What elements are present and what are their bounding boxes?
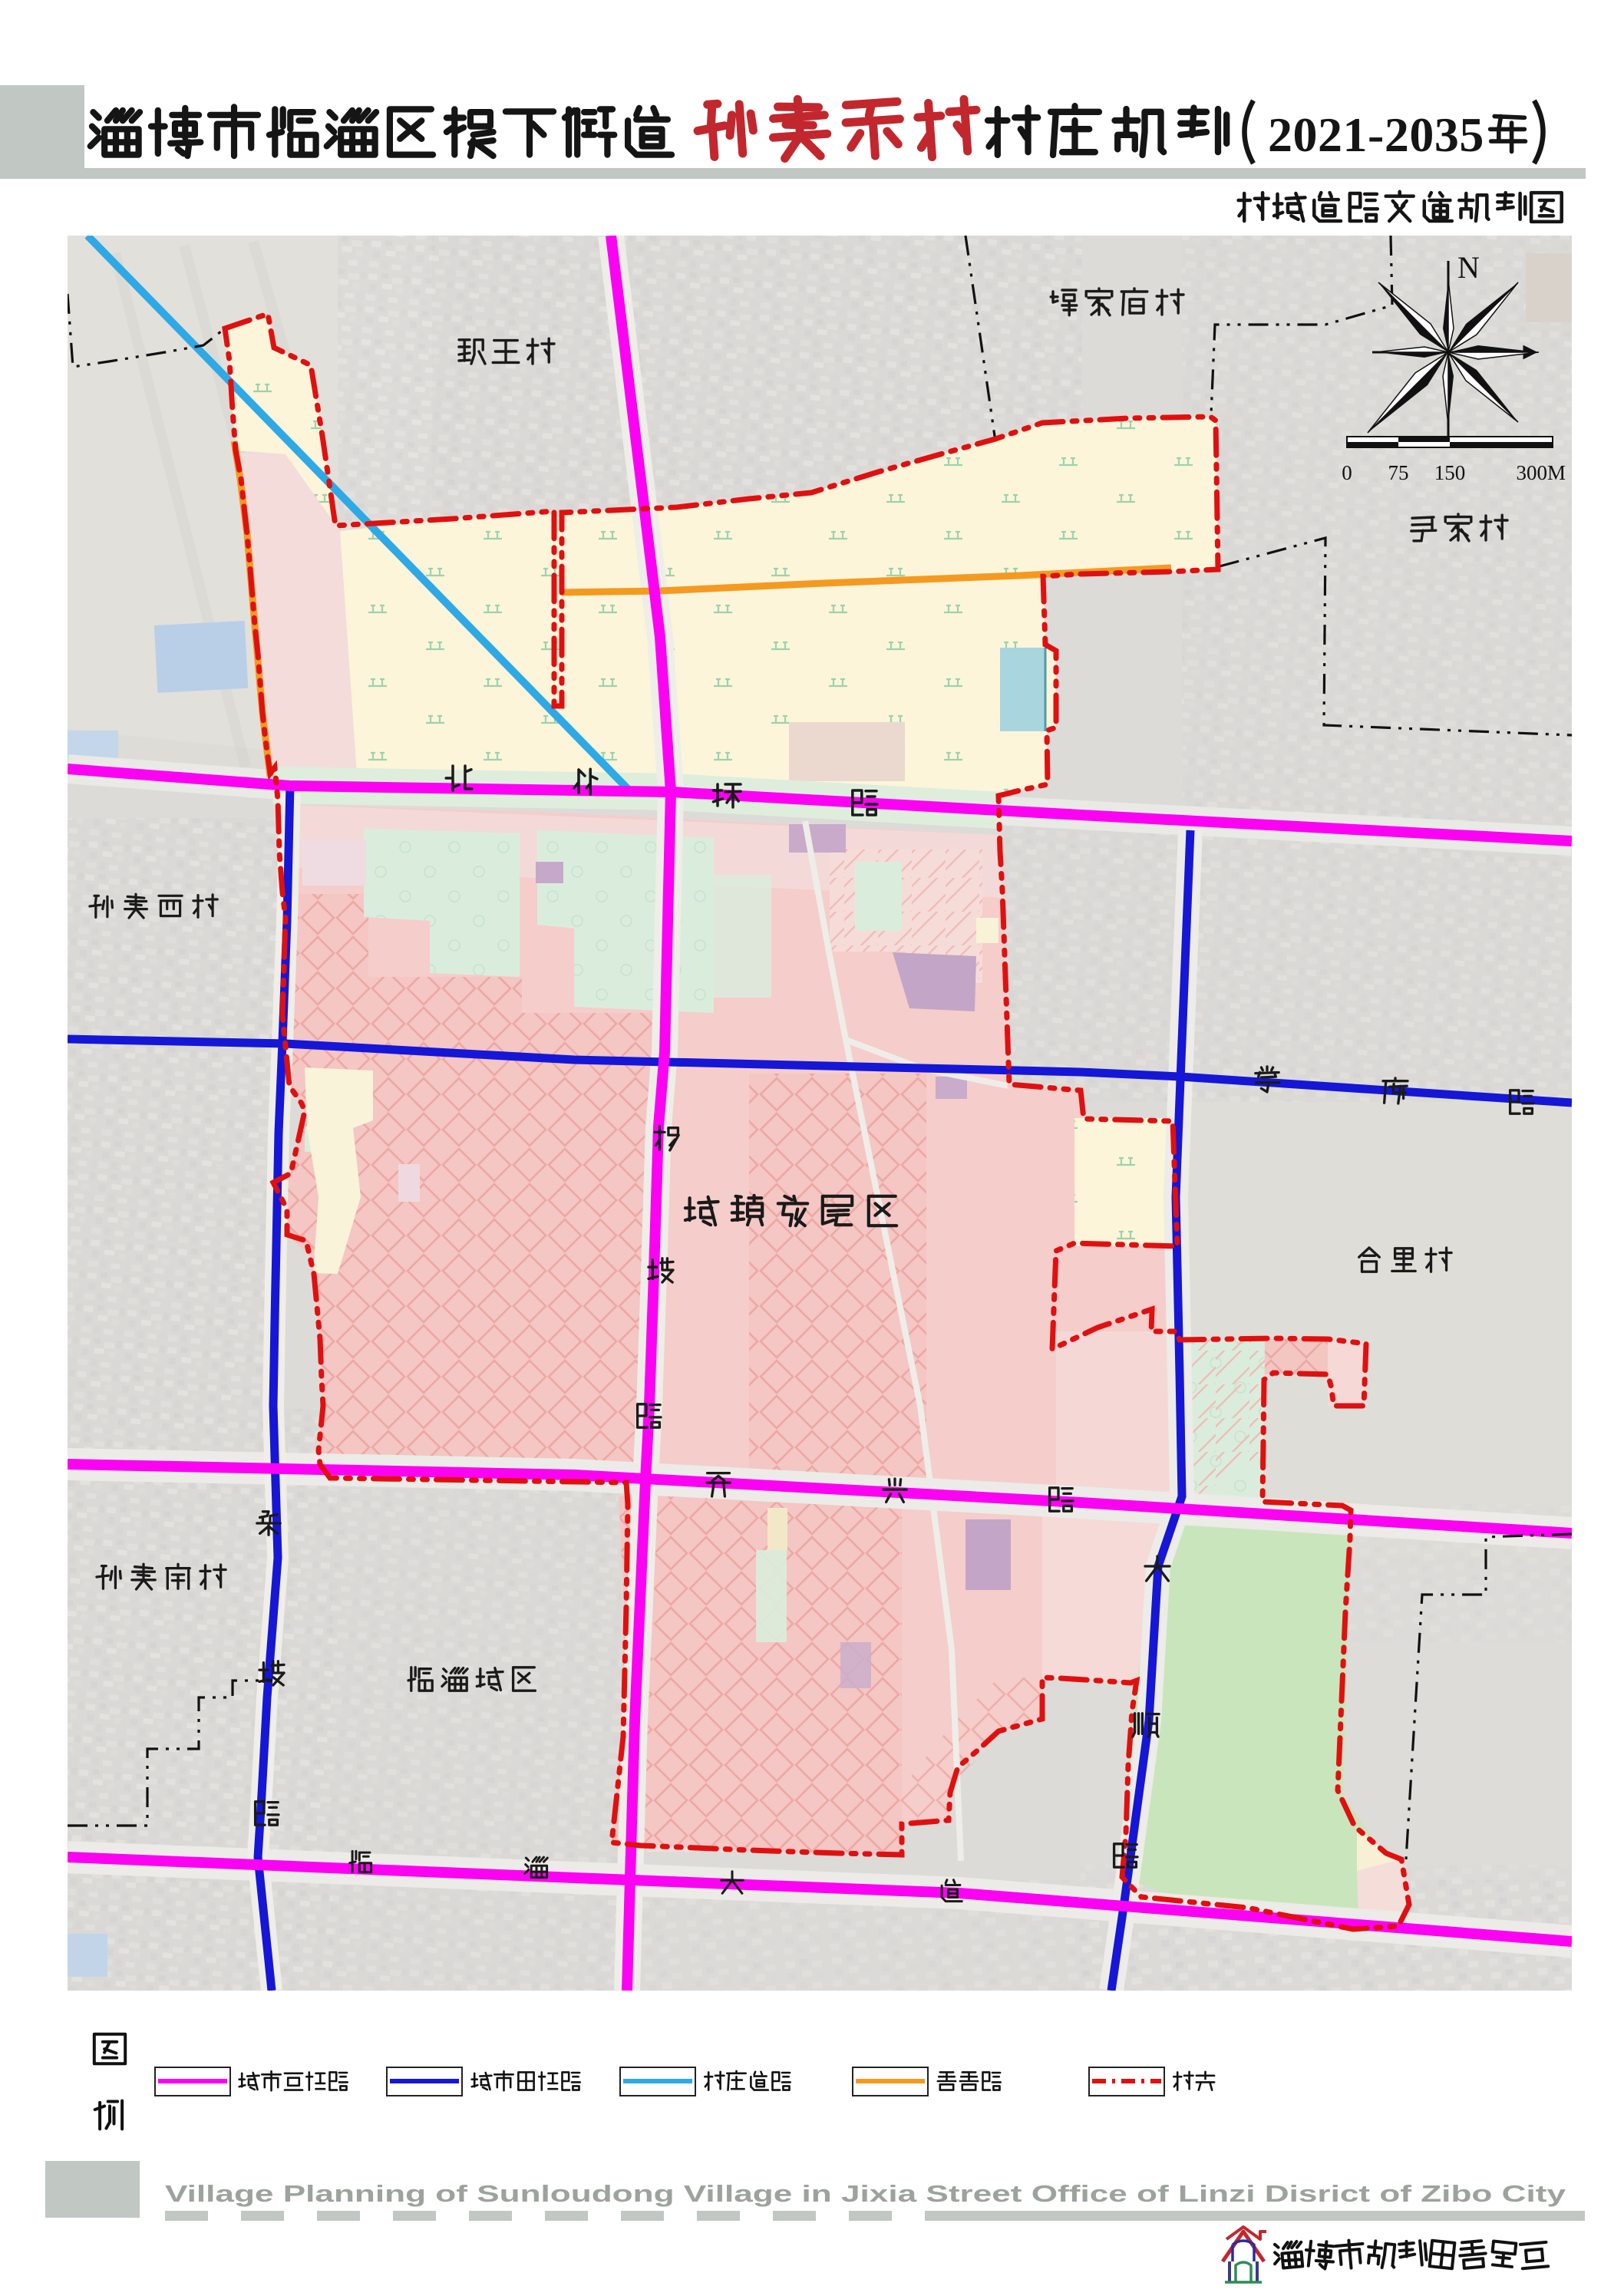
svg-text:300M: 300M bbox=[1516, 461, 1566, 484]
svg-text:Village Planning of Sunloudong: Village Planning of Sunloudong Village i… bbox=[165, 2180, 1566, 2207]
svg-text:0: 0 bbox=[1342, 461, 1352, 484]
svg-text:N: N bbox=[1457, 250, 1480, 285]
svg-text:150: 150 bbox=[1434, 461, 1466, 484]
svg-text:2021-2035: 2021-2035 bbox=[1268, 107, 1484, 162]
svg-text:75: 75 bbox=[1388, 461, 1409, 484]
